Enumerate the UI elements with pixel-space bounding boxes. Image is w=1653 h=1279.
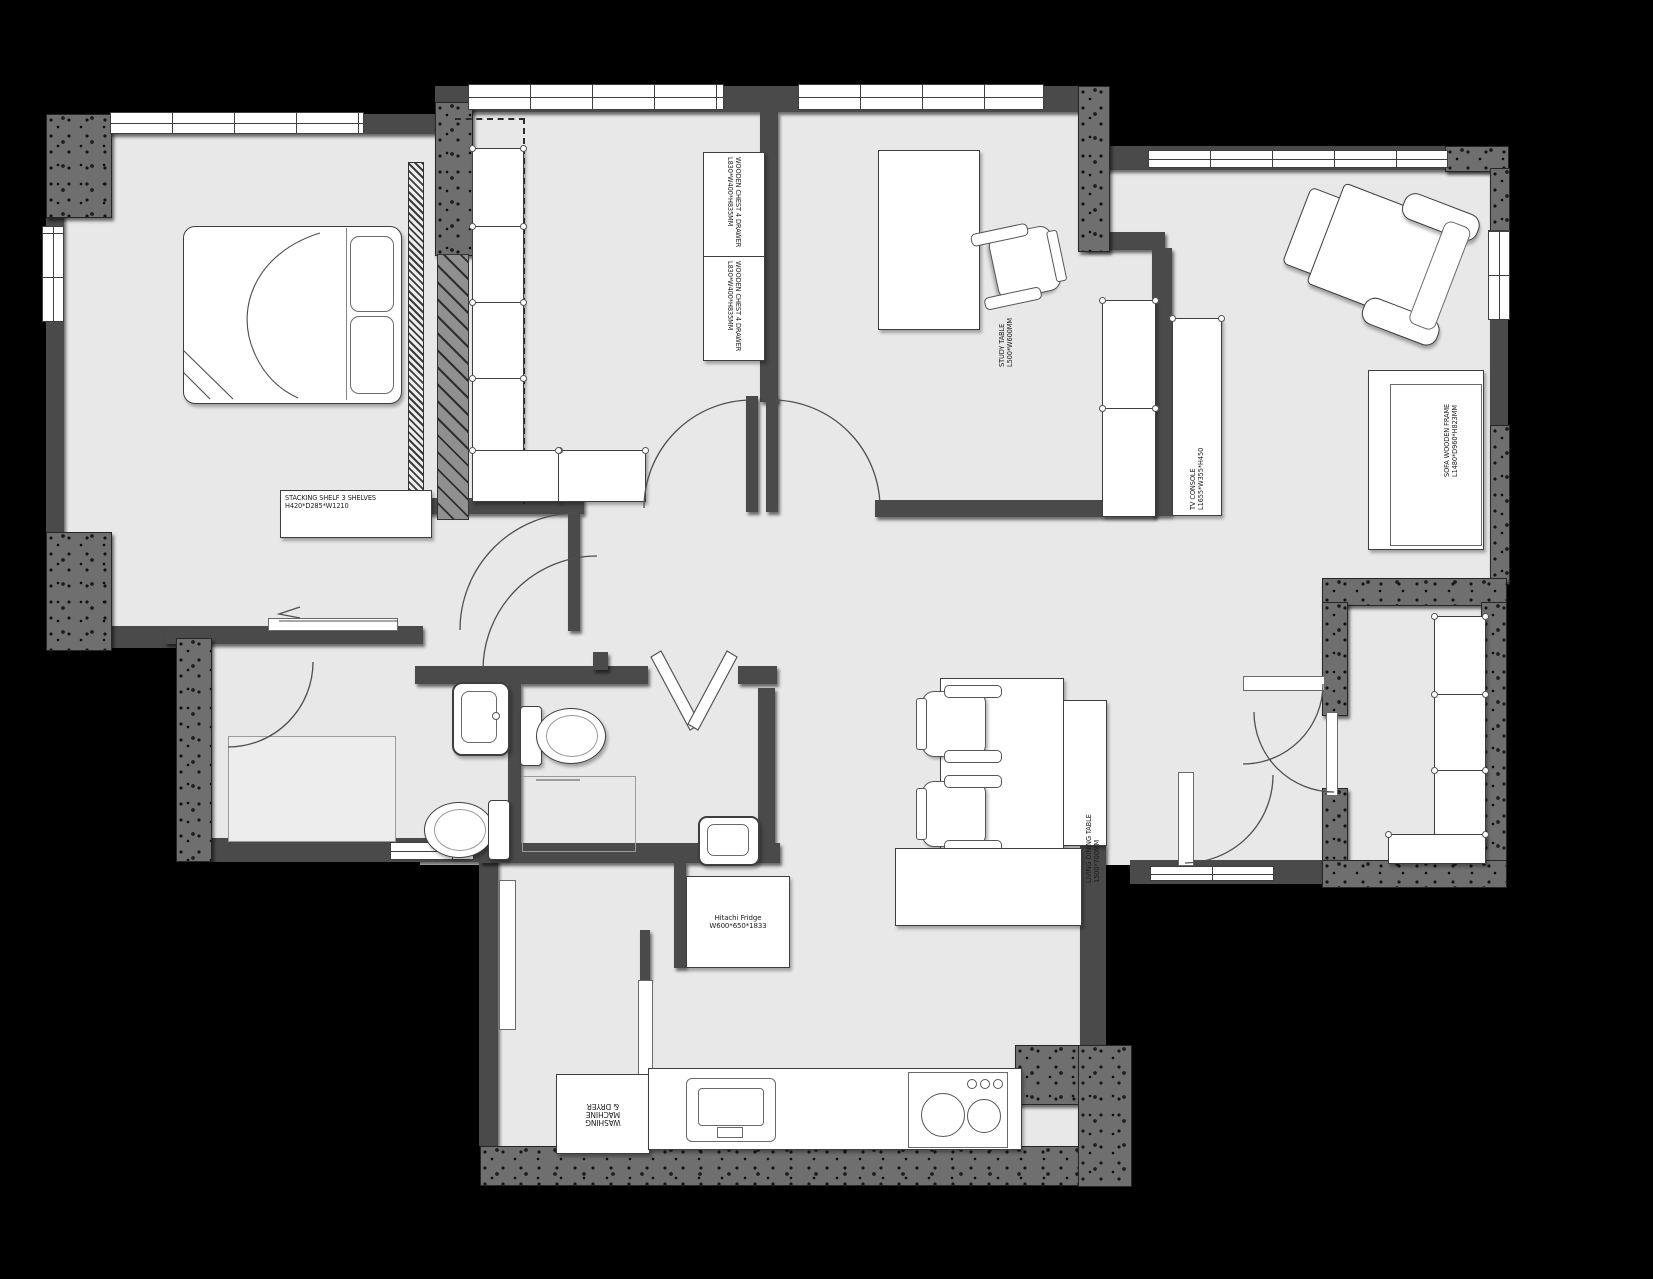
stove-knob	[980, 1079, 990, 1089]
wooden-chest-2: WOODEN CHEST 4 DRAWER L830*W400*H835MM	[703, 256, 765, 361]
concrete-balcony-bottom	[1322, 860, 1507, 888]
chair-back	[916, 698, 927, 750]
bathroom-sink-1	[452, 682, 510, 756]
sink-drain	[492, 712, 500, 720]
wall-kitchen-left	[479, 843, 498, 1146]
chair-armrest	[944, 685, 1002, 698]
stove-knob	[993, 1079, 1003, 1089]
chair-armrest	[944, 775, 1002, 788]
balcony-shelf-segment	[1434, 694, 1486, 772]
toilet-bowl-inner	[546, 715, 598, 757]
shower-tray	[228, 736, 396, 842]
door-leaf-closet	[746, 396, 758, 512]
closet-shelf-segment	[472, 378, 524, 454]
chair-seat	[922, 691, 986, 757]
window-bedroom-top	[110, 112, 364, 134]
concrete-top-left	[46, 114, 112, 218]
window-living-top	[1148, 150, 1448, 168]
kitchen-sink-tap	[717, 1127, 743, 1138]
fridge-label: Hitachi Fridge W600*650*1833	[687, 877, 789, 967]
wall-kitchen-door-stub	[640, 930, 650, 980]
closet-shelf-bottom-b	[558, 450, 646, 502]
toilet-bowl-inner	[434, 809, 486, 851]
door-leaf-corridor-top	[1243, 676, 1325, 691]
door-leaf-kitchen	[638, 980, 653, 1078]
door-leaf-kitchen-left	[499, 880, 516, 1030]
concrete-kitchen-corner-b	[1078, 1045, 1132, 1187]
closet-shelf-segment	[472, 226, 524, 304]
window-study-top	[798, 84, 1044, 110]
sofa-cushion	[1390, 384, 1482, 546]
opening-living-bottom	[1150, 866, 1274, 881]
window-bedroom-left	[42, 226, 64, 322]
wall-fridge-stub	[674, 862, 686, 968]
kitchen-sink	[686, 1078, 776, 1142]
chair-seat	[922, 781, 986, 847]
closet-shelf-bottom-a	[472, 450, 560, 502]
study-desk	[878, 150, 980, 330]
wooden-chest-1-label: WOODEN CHEST 4 DRAWER L830*W400*H835MM	[726, 157, 742, 253]
fridge: Hitachi Fridge W600*650*1833	[686, 876, 790, 968]
pillow	[350, 236, 394, 312]
dining-chair	[916, 688, 1004, 760]
wall-bathroom-stub	[593, 652, 608, 670]
window-living-right	[1488, 230, 1510, 320]
sink-basin	[707, 824, 749, 856]
vanity-mirror	[268, 618, 398, 631]
closet-shelf-segment	[472, 302, 524, 380]
shower-enclosure	[522, 776, 636, 852]
drawer-chest-upper	[1102, 300, 1156, 410]
door-leaf-study	[766, 396, 778, 512]
balcony-bench	[1388, 834, 1486, 864]
bed-headboard-line	[346, 228, 347, 400]
concrete-bathroom-left	[176, 638, 212, 862]
stacking-shelf: STACKING SHELF 3 SHELVES H420*D285*W1210	[280, 490, 432, 538]
wall-bathroom-heavy-left	[415, 666, 648, 684]
drawer-chest-lower	[1102, 408, 1156, 517]
chair-back	[916, 788, 927, 840]
stove-burner-small	[967, 1099, 1001, 1133]
chair-armrest	[944, 750, 1002, 763]
stove	[908, 1072, 1008, 1148]
toilet-tank	[488, 800, 510, 860]
wardrobe-hatch-dense	[408, 162, 424, 517]
concrete-balcony-left-upper	[1322, 602, 1348, 716]
kitchen-sink-basin	[698, 1088, 764, 1126]
wooden-chest-1: WOODEN CHEST 4 DRAWER L830*W400*H835MM	[703, 152, 765, 257]
door-leaf-corridor	[1178, 772, 1194, 866]
wall-bathroom-heavy-right	[738, 666, 777, 684]
tv-console-label: TV CONSOLE L1655*W355*H450	[1185, 429, 1209, 509]
sofa-label: SOFA WOODEN FRAME L1480*D960*H823MM	[1440, 388, 1462, 476]
floor-plan: STACKING SHELF 3 SHELVES H420*D285*W1210…	[0, 0, 1653, 1279]
washing-machine-label: WASHING MACHINE & DRYER	[557, 1075, 649, 1153]
pillow	[350, 316, 394, 394]
dining-table-label: LIVING DINING TABLE 1500*700MM	[1082, 798, 1104, 882]
bathroom-sink-2	[698, 816, 760, 866]
wooden-chest-2-label: WOODEN CHEST 4 DRAWER L830*W400*H835MM	[726, 261, 742, 357]
balcony-shelf-segment	[1434, 616, 1486, 696]
study-table-label: STUDY TABLE L500*W600MM	[994, 288, 1018, 366]
door-leaf-entry	[568, 513, 580, 631]
concrete-balcony-top	[1322, 578, 1507, 606]
washing-machine: WASHING MACHINE & DRYER	[556, 1074, 650, 1154]
concrete-study-column	[1078, 86, 1110, 252]
stove-burner-large	[921, 1093, 965, 1137]
stacking-shelf-label: STACKING SHELF 3 SHELVES H420*D285*W1210	[281, 491, 431, 510]
concrete-left-lower	[46, 532, 112, 651]
dining-chair	[916, 778, 1004, 850]
stove-knob	[967, 1079, 977, 1089]
closet-shelf-segment	[472, 148, 524, 228]
window-closet-top	[468, 84, 724, 110]
concrete-right-lower	[1490, 425, 1510, 585]
wall-bathroom-right	[758, 688, 775, 843]
tv-console: TV CONSOLE L1655*W355*H450	[1172, 318, 1222, 516]
kitchen-island	[895, 848, 1082, 926]
door-leaf-balcony	[1326, 712, 1338, 796]
